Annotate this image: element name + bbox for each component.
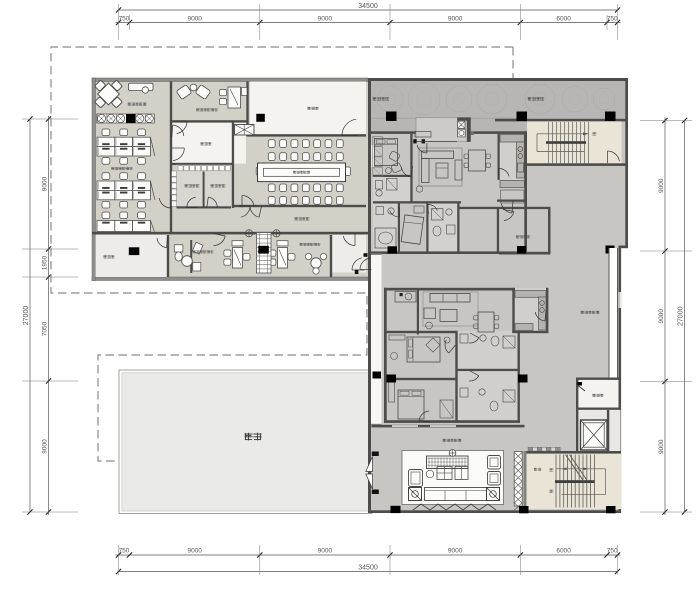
svg-text:750: 750 <box>119 16 130 23</box>
svg-text:9000: 9000 <box>448 16 463 23</box>
svg-text:9000: 9000 <box>42 439 49 454</box>
svg-text:6000: 6000 <box>556 16 571 23</box>
svg-text:750: 750 <box>607 548 618 555</box>
svg-text:750: 750 <box>607 16 618 23</box>
svg-text:34500: 34500 <box>358 565 378 572</box>
svg-text:9000: 9000 <box>658 439 665 454</box>
svg-text:6000: 6000 <box>556 548 571 555</box>
svg-text:9000: 9000 <box>658 309 665 324</box>
svg-text:9000: 9000 <box>448 548 463 555</box>
svg-text:9000: 9000 <box>187 548 202 555</box>
svg-text:7050: 7050 <box>42 321 49 336</box>
svg-text:9000: 9000 <box>187 16 202 23</box>
svg-text:34500: 34500 <box>358 3 378 10</box>
svg-text:9000: 9000 <box>658 178 665 193</box>
svg-text:750: 750 <box>119 548 130 555</box>
svg-text:27000: 27000 <box>677 306 684 326</box>
svg-text:1950: 1950 <box>42 255 49 270</box>
svg-text:9000: 9000 <box>318 16 333 23</box>
svg-text:9000: 9000 <box>318 548 333 555</box>
svg-text:27000: 27000 <box>23 306 30 326</box>
svg-text:9000: 9000 <box>42 176 49 191</box>
